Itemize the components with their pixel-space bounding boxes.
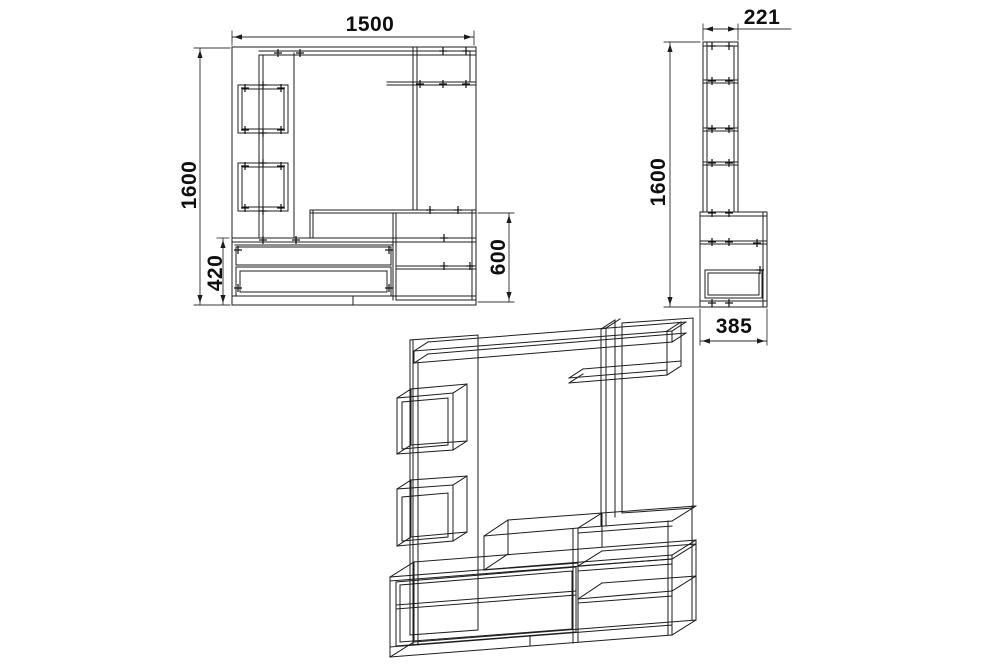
- dim-label-front-height: 1600: [179, 149, 201, 221]
- iso-view: [390, 318, 696, 657]
- side-view: [664, 24, 791, 345]
- dim-label-cabinet-height: 420: [205, 237, 227, 309]
- dim-label-side-height: 1600: [648, 146, 670, 218]
- front-view: [194, 31, 514, 305]
- dim-label-side-depth-top: 221: [726, 7, 798, 29]
- dim-label-niche-height: 600: [488, 221, 510, 293]
- dim-label-front-width: 1500: [334, 14, 406, 36]
- blueprint-canvas: [0, 0, 1000, 668]
- blueprint-page: 1500 1600 420 600 221 1600 385: [0, 0, 1000, 668]
- dim-label-side-depth-bottom: 385: [698, 316, 770, 338]
